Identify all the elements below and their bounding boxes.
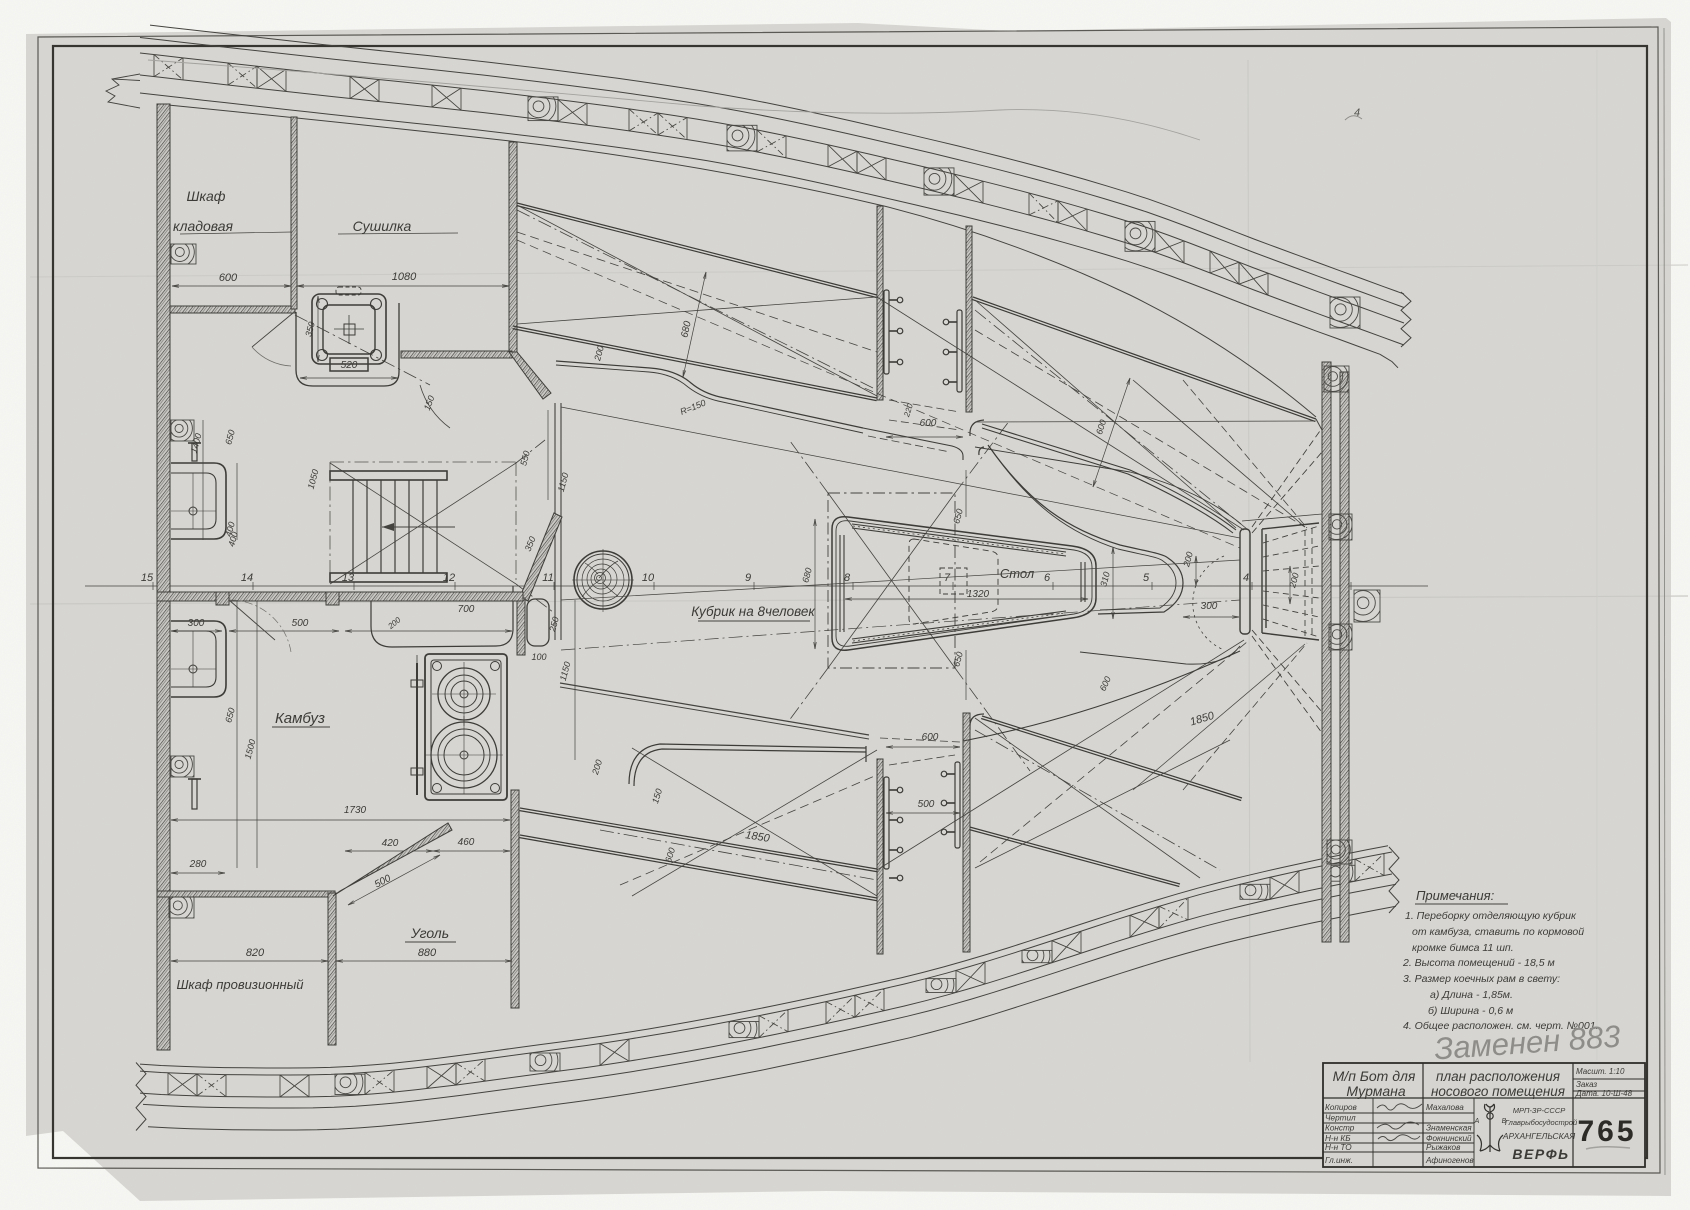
svg-text:Главрыбосудострой: Главрыбосудострой bbox=[1505, 1118, 1578, 1127]
svg-text:Махалова: Махалова bbox=[1426, 1103, 1464, 1112]
svg-text:А: А bbox=[1474, 1118, 1480, 1125]
svg-text:Камбуз: Камбуз bbox=[275, 710, 325, 727]
svg-text:Масшт. 1:10: Масшт. 1:10 bbox=[1576, 1067, 1625, 1076]
svg-text:820: 820 bbox=[246, 947, 265, 959]
svg-text:600: 600 bbox=[922, 732, 939, 743]
svg-text:14: 14 bbox=[241, 572, 253, 584]
svg-text:М/п Бот для: М/п Бот для bbox=[1333, 1068, 1416, 1084]
svg-text:Н-н КБ: Н-н КБ bbox=[1325, 1134, 1351, 1143]
svg-text:880: 880 bbox=[418, 947, 437, 959]
svg-text:420: 420 bbox=[382, 838, 399, 849]
svg-text:Дата. 10-Ш-48: Дата. 10-Ш-48 bbox=[1575, 1089, 1633, 1098]
svg-text:Констр: Констр bbox=[1325, 1124, 1355, 1133]
svg-text:460: 460 bbox=[458, 837, 475, 848]
svg-text:500: 500 bbox=[918, 799, 935, 810]
svg-text:1320: 1320 bbox=[967, 589, 990, 600]
svg-text:план расположения: план расположения bbox=[1436, 1069, 1560, 1084]
svg-text:кромке бимса 11 шп.: кромке бимса 11 шп. bbox=[1412, 942, 1514, 954]
svg-text:520: 520 bbox=[341, 360, 358, 371]
svg-text:Мурмана: Мурмана bbox=[1346, 1083, 1406, 1099]
svg-text:Чертил: Чертил bbox=[1325, 1114, 1356, 1123]
svg-text:2. Высота помещений - 18,5 м: 2. Высота помещений - 18,5 м bbox=[1402, 957, 1555, 969]
svg-text:5: 5 bbox=[1143, 572, 1150, 584]
svg-text:1. Переборку отделяющую кубр: 1. Переборку отделяющую кубрик bbox=[1405, 910, 1577, 922]
svg-text:600: 600 bbox=[920, 418, 937, 429]
svg-text:6: 6 bbox=[1044, 572, 1051, 584]
svg-text:10: 10 bbox=[642, 572, 655, 584]
svg-text:от камбуза, ставить по корм: от камбуза, ставить по кормовой bbox=[1412, 926, 1584, 938]
svg-text:4: 4 bbox=[1243, 572, 1249, 584]
svg-text:носового помещения: носового помещения bbox=[1431, 1084, 1565, 1099]
svg-text:11: 11 bbox=[542, 572, 553, 584]
svg-text:АРХАНГЕЛЬСКАЯ: АРХАНГЕЛЬСКАЯ bbox=[1502, 1131, 1576, 1141]
svg-text:кладовая: кладовая bbox=[173, 218, 234, 234]
svg-text:Заказ: Заказ bbox=[1576, 1080, 1597, 1089]
svg-text:Афиногенов: Афиногенов bbox=[1425, 1156, 1474, 1165]
svg-text:300: 300 bbox=[1201, 601, 1218, 612]
svg-text:500: 500 bbox=[292, 618, 309, 629]
svg-text:3. Размер коечных рам в све: 3. Размер коечных рам в свету: bbox=[1403, 973, 1560, 985]
svg-text:7: 7 bbox=[944, 572, 951, 584]
svg-text:1080: 1080 bbox=[392, 271, 417, 283]
svg-text:8: 8 bbox=[844, 572, 851, 584]
svg-text:280: 280 bbox=[189, 859, 207, 870]
svg-text:765: 765 bbox=[1577, 1115, 1636, 1148]
svg-text:1730: 1730 bbox=[344, 805, 367, 816]
svg-text:Примечания:: Примечания: bbox=[1416, 888, 1495, 903]
svg-text:100: 100 bbox=[531, 652, 546, 662]
svg-text:9: 9 bbox=[745, 572, 751, 584]
svg-text:300: 300 bbox=[188, 618, 205, 629]
svg-text:Уголь: Уголь bbox=[410, 925, 449, 941]
svg-text:Знаменская: Знаменская bbox=[1426, 1124, 1472, 1133]
svg-text:ВЕРФЬ: ВЕРФЬ bbox=[1512, 1146, 1569, 1162]
svg-text:а) Длина - 1,85м.: а) Длина - 1,85м. bbox=[1430, 989, 1513, 1001]
svg-text:700: 700 bbox=[458, 604, 475, 615]
svg-text:Сушилка: Сушилка bbox=[353, 218, 412, 234]
svg-text:600: 600 bbox=[219, 272, 238, 284]
svg-text:Копиров: Копиров bbox=[1325, 1103, 1358, 1112]
svg-text:Рыжаков: Рыжаков bbox=[1426, 1143, 1461, 1152]
svg-text:Кубрик на 8человек: Кубрик на 8человек bbox=[691, 604, 815, 619]
svg-text:б) Ширина - 0,6 м: б) Ширина - 0,6 м bbox=[1428, 1005, 1513, 1017]
svg-text:Гл.инж.: Гл.инж. bbox=[1325, 1156, 1353, 1165]
svg-text:Шкаф: Шкаф bbox=[187, 188, 226, 204]
svg-text:Фокнинский: Фокнинский bbox=[1426, 1134, 1472, 1143]
svg-text:МРП-ЗР-СССР: МРП-ЗР-СССР bbox=[1513, 1106, 1566, 1115]
svg-text:Н-н ТО: Н-н ТО bbox=[1325, 1143, 1352, 1152]
svg-text:Шкаф провизионный: Шкаф провизионный bbox=[176, 977, 303, 992]
svg-text:15: 15 bbox=[141, 572, 154, 584]
